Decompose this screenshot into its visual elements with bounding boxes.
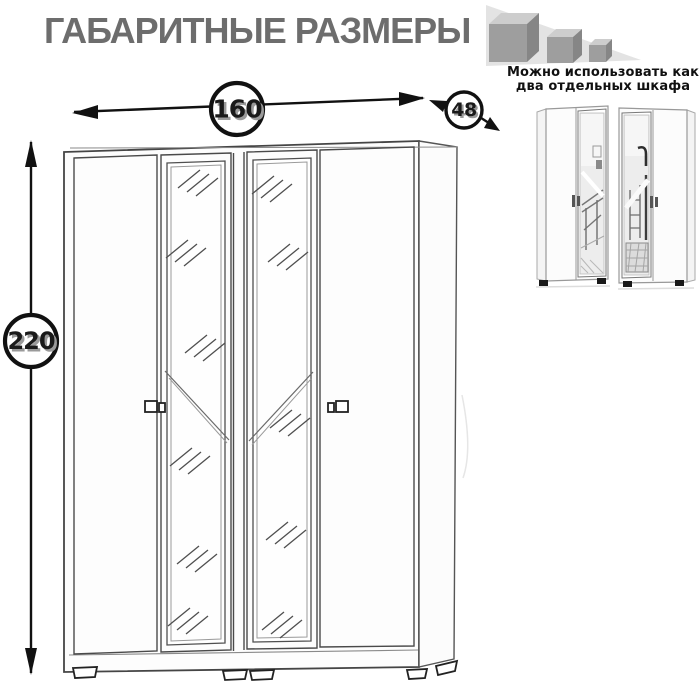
foot (623, 281, 632, 287)
cabinet-side (687, 110, 695, 282)
door-3-mirror (247, 150, 317, 649)
depth-value: 48 (451, 99, 477, 121)
foot (539, 280, 548, 286)
cabinet-side (537, 109, 546, 281)
depth-arrowhead-right (484, 117, 500, 131)
mirror-frame-inner (257, 162, 307, 638)
handle (650, 196, 653, 208)
mirror-frame-inner (171, 165, 221, 641)
left-door-handle (145, 401, 165, 412)
depth-arrowhead-left (429, 100, 447, 112)
wardrobe-line-drawing (64, 141, 468, 680)
depth-dimension: 48 48 (429, 92, 500, 131)
wardrobe-foot (223, 670, 247, 680)
wardrobe-front-face (64, 141, 419, 672)
height-dimension: 220 220 (5, 140, 57, 675)
photo-wardrobe-left (536, 106, 610, 287)
wardrobe-foot (250, 670, 274, 680)
handle (655, 197, 658, 207)
foot (675, 280, 684, 286)
cube-large-icon (489, 13, 539, 62)
height-arrowhead-top (25, 140, 37, 167)
floor-shadow (536, 286, 610, 287)
floor-shadow (618, 288, 694, 289)
width-arrowhead-left (72, 105, 98, 119)
handle (577, 196, 580, 206)
door-2-mirror (161, 153, 231, 652)
right-door-handle (328, 401, 348, 412)
width-dimension: 160 160 (72, 83, 425, 135)
shrinking-cubes-icon (486, 5, 641, 66)
foot (597, 278, 606, 284)
cube-medium-icon (547, 29, 582, 63)
wardrobe-side-face (419, 141, 457, 667)
wardrobe-foot (407, 669, 427, 679)
handle (572, 195, 575, 207)
diagram-canvas: 160 160 48 48 220 220 (0, 0, 700, 686)
width-arrowhead-right (399, 92, 425, 106)
height-value: 220 (7, 327, 54, 355)
photo-wardrobe-right (618, 108, 695, 289)
product-dimensions-sheet: ГАБАРИТНЫЕ РАЗМЕРЫ Можно использовать ка… (0, 0, 700, 686)
sketch-artifact (462, 395, 468, 478)
cube-small-icon (589, 39, 612, 62)
wardrobe-foot (73, 667, 97, 678)
width-value: 160 (212, 95, 262, 124)
height-arrowhead-bottom (25, 648, 37, 675)
